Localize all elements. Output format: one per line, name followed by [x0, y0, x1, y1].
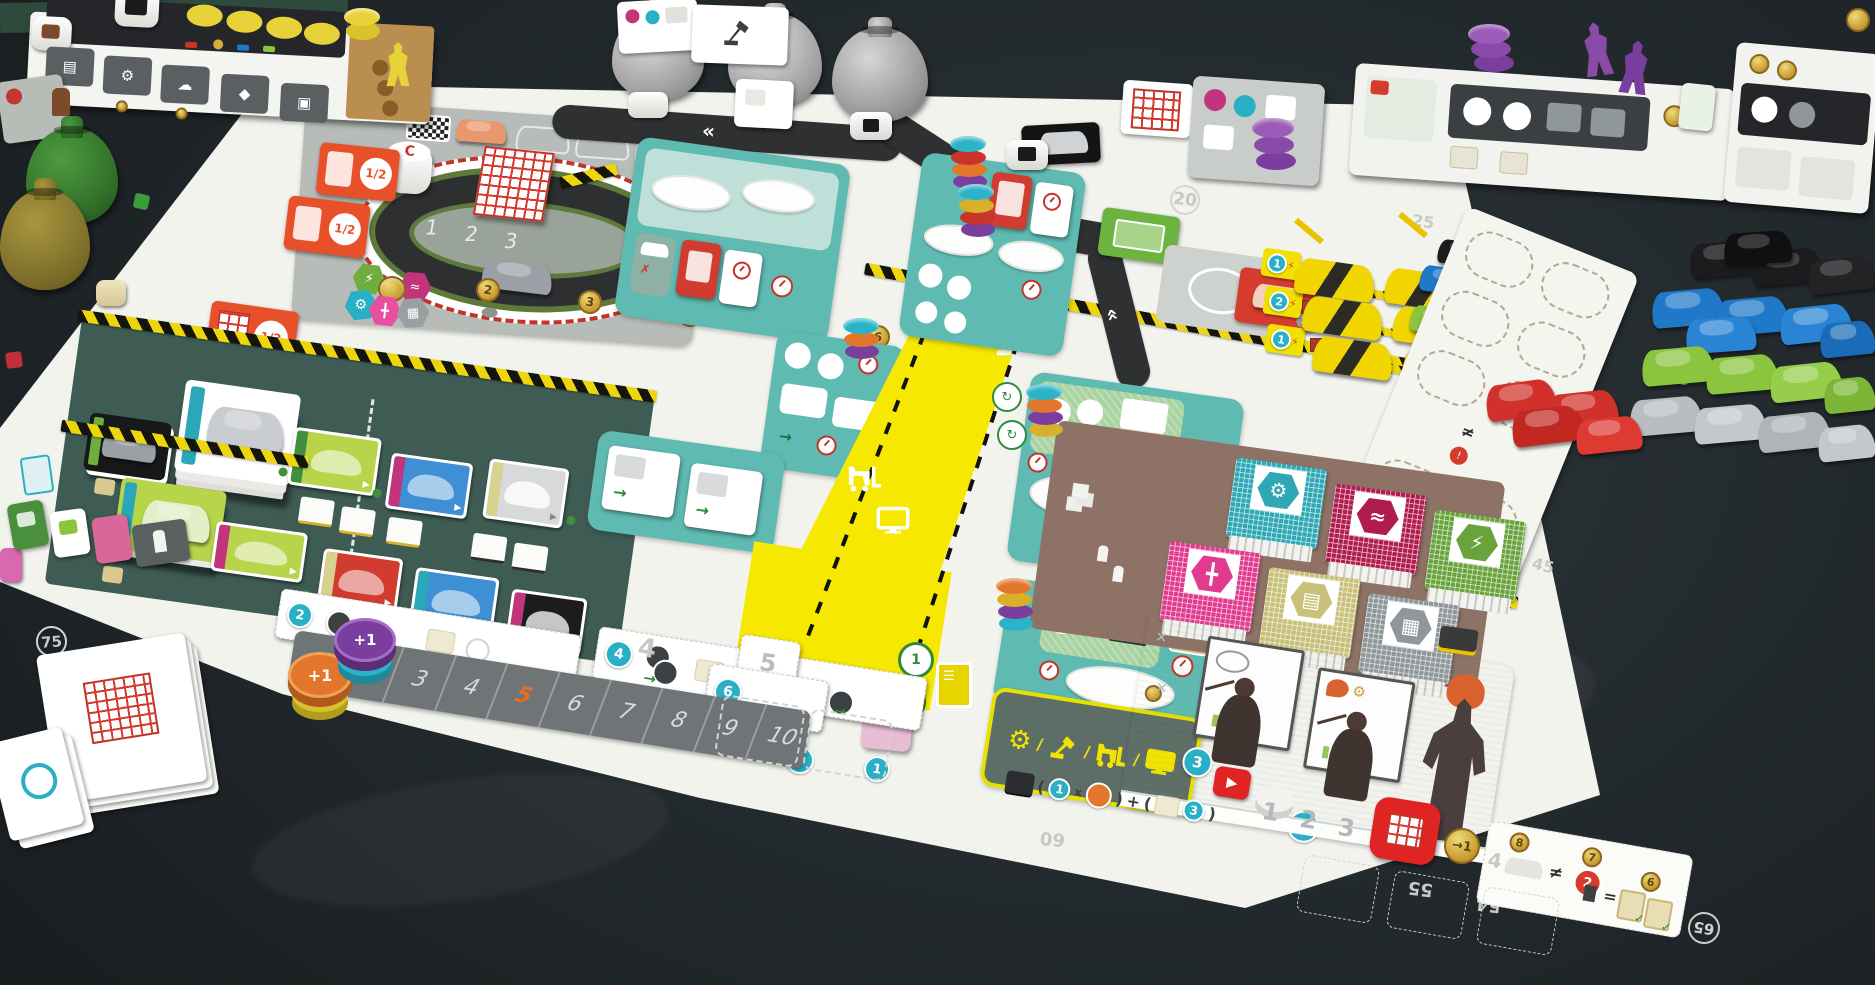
- worker-figure: [1112, 565, 1124, 582]
- disc-orange: [996, 578, 1032, 594]
- dock-cell: [802, 708, 895, 782]
- figure-icon: [152, 529, 167, 552]
- design-card-label: [214, 524, 231, 569]
- disc-purple: [1256, 152, 1296, 170]
- monitor-tile-icon: [1004, 770, 1035, 796]
- gauge-icon: [732, 260, 752, 280]
- token-plus-one: +1: [334, 618, 396, 662]
- card-icon: [58, 519, 78, 535]
- wood-coin-slot: [372, 59, 389, 76]
- tag-slot: [1449, 146, 1478, 170]
- disc-purple: [1254, 136, 1294, 154]
- bag-stand-token[interactable]: [628, 92, 668, 118]
- worker-slot: [914, 300, 939, 325]
- shift-tag-value: 1: [1266, 252, 1289, 275]
- scorepad-grid-icon: [1131, 88, 1182, 131]
- parking-slot: [1510, 314, 1593, 385]
- worker-figure: [1097, 545, 1109, 562]
- car-windshield: [1729, 299, 1765, 318]
- green-die[interactable]: [133, 193, 151, 211]
- meeting-card[interactable]: 1/2: [316, 142, 401, 202]
- gauge-icon: [1026, 451, 1049, 474]
- mini-tile-gray[interactable]: [131, 518, 190, 567]
- band-circle-icon: [1462, 96, 1492, 126]
- mini-car-icon: [640, 241, 670, 258]
- rnd-shelf-battery: ⚡: [1424, 509, 1526, 601]
- tag-slot: [1499, 151, 1528, 175]
- green-arrow-icon: →: [612, 482, 628, 503]
- order-card-red[interactable]: [675, 239, 722, 300]
- disc-purple: [1468, 24, 1510, 44]
- cyan-dot-icon: [645, 10, 660, 25]
- stand-glyph: [863, 119, 879, 132]
- board-slot: [1265, 95, 1297, 121]
- person-chip-icon: [1084, 781, 1114, 811]
- cyan-icon: [1233, 94, 1256, 117]
- tabletop-scene: 10 20 25 35 45 55 54 60 65 70 75 ⚙ 1 2 3…: [0, 0, 1875, 985]
- monitor-icon: [876, 506, 910, 536]
- design-desk: [339, 506, 376, 537]
- car-windshield: [1699, 319, 1734, 336]
- rnd-shelf-engine: ⚙: [1225, 457, 1327, 549]
- card-corner-arrow-icon: ▶: [454, 503, 462, 514]
- parking-slot: [1410, 343, 1493, 414]
- grid-tile-icon: [1154, 795, 1181, 819]
- car-windshield: [1737, 233, 1771, 249]
- paren: (: [1143, 793, 1153, 813]
- score-cell: [1296, 854, 1381, 924]
- design-deck-label: [181, 386, 206, 465]
- disc-yellow: [959, 198, 994, 213]
- formula-badge-3: 3: [1181, 798, 1206, 823]
- electronics-part-icon: ▦: [1386, 605, 1435, 647]
- design-card-car: [406, 472, 456, 501]
- gauge-icon: [1020, 278, 1043, 301]
- shift-tag-value: 1: [1270, 328, 1293, 351]
- robot-arm-icon: [1047, 732, 1081, 762]
- gauge-icon: [815, 434, 838, 457]
- action-slot[interactable]: ☁: [160, 64, 210, 104]
- bolt-icon: ⚡: [1288, 296, 1297, 310]
- disc-cyan: [1026, 384, 1062, 400]
- car-windshield: [1820, 259, 1853, 277]
- design-card[interactable]: ▶: [210, 521, 308, 583]
- assembly-panel-right: [898, 151, 1087, 357]
- end-game-calendar-button[interactable]: [1368, 795, 1443, 867]
- plant: [566, 515, 576, 525]
- meeting-slot-badge-3: 3: [1180, 745, 1214, 779]
- performance-part-icon: ≈: [1353, 496, 1402, 538]
- car-windshield: [1643, 399, 1679, 418]
- pink-cylinder-token[interactable]: [0, 548, 22, 582]
- disc-orange: [844, 332, 879, 347]
- mini-car-red-icon: [185, 42, 197, 49]
- car-windshield: [1828, 427, 1857, 445]
- order-card-white[interactable]: [718, 249, 763, 308]
- tile-icon: [745, 89, 766, 106]
- magenta-icon: [1203, 88, 1226, 111]
- play-button[interactable]: ▶: [1212, 765, 1252, 800]
- band-circle-icon: [1750, 96, 1778, 124]
- cert-clipboard: ✓: [1616, 889, 1647, 923]
- order-card-red[interactable]: [986, 171, 1033, 230]
- worker-slot: [917, 262, 944, 289]
- penalty-icon: !: [1447, 444, 1470, 467]
- red-die[interactable]: [5, 351, 23, 369]
- demand-badge: 2: [285, 600, 315, 630]
- yellow-disc[interactable]: [303, 22, 340, 46]
- design-desk: [298, 496, 335, 527]
- rnd-shelf-performance: ≈: [1325, 483, 1427, 575]
- worker-slot: [943, 310, 968, 335]
- action-slot[interactable]: ◆: [220, 74, 270, 114]
- order-card-white[interactable]: [1029, 181, 1074, 238]
- dock-cell: [714, 694, 807, 768]
- meeting-card-ratio: 1/2: [358, 156, 393, 191]
- car-windshield: [1783, 365, 1819, 384]
- card-icon: [696, 472, 729, 498]
- car-windshield: [1771, 415, 1807, 434]
- bonus-tile[interactable]: [734, 79, 794, 130]
- cert-car-outline: [1504, 856, 1544, 879]
- opponent-player-board[interactable]: [1723, 42, 1875, 214]
- car-windshield: [1793, 307, 1829, 326]
- supply-car-green[interactable]: [1705, 353, 1780, 395]
- supply-car-red[interactable]: [1574, 415, 1643, 456]
- bag-stand-token[interactable]: [850, 112, 892, 140]
- action-slot[interactable]: ⚙: [102, 55, 152, 95]
- supply-car-black[interactable]: [1723, 230, 1793, 267]
- supply-car-green[interactable]: [1822, 375, 1875, 414]
- neq-symbol: ≠: [1458, 421, 1478, 444]
- car-windshield: [1588, 419, 1621, 437]
- action-slot[interactable]: ▣: [279, 83, 329, 123]
- board-dark-band: [1447, 84, 1650, 152]
- yellow-disc[interactable]: [226, 10, 263, 34]
- disc-purple: [1252, 118, 1294, 138]
- gauge-icon: [1042, 192, 1062, 212]
- gauge-icon: [1038, 659, 1061, 682]
- parking-slot: [1458, 224, 1541, 295]
- shift-tag-3: 1⚡: [1264, 323, 1306, 356]
- cash-icon: [1112, 219, 1165, 254]
- supply-car-green[interactable]: [1641, 345, 1716, 387]
- car-windshield: [1498, 383, 1533, 403]
- card-corner-arrow-icon: ▶: [289, 566, 297, 577]
- disc-orange: [1027, 398, 1062, 413]
- car-windshield: [1833, 379, 1859, 396]
- card-icon: [614, 454, 647, 480]
- car-windshield: [1830, 323, 1858, 341]
- assembly-table: [649, 170, 733, 215]
- table-light-streak: [244, 751, 677, 928]
- score-space-65: 65: [1685, 909, 1722, 946]
- kanban-tag[interactable]: [102, 565, 124, 584]
- times-sign: x: [1073, 785, 1083, 800]
- design-card[interactable]: ▶: [482, 458, 570, 529]
- lap-space-2: 2: [465, 222, 478, 246]
- board-slot: [1735, 146, 1792, 191]
- bulb-gear-icon: ⚙: [1006, 724, 1034, 757]
- wood-coin-slot: [382, 100, 399, 117]
- yellow-disc[interactable]: [266, 16, 303, 40]
- cyan-ring-icon: [17, 759, 61, 803]
- purple-meeple[interactable]: [1574, 20, 1619, 81]
- pit-circle-1: 1: [898, 642, 934, 678]
- mini-card-white[interactable]: [49, 508, 91, 559]
- forklift-slot: [846, 462, 884, 496]
- car-windshield: [1655, 349, 1691, 368]
- red-icon: [5, 87, 23, 105]
- gear-check-icon: ⚙: [1351, 682, 1367, 702]
- meeting-card-icon: [325, 151, 354, 188]
- pallet-boxes: [1071, 483, 1089, 499]
- station-slot: [779, 383, 829, 419]
- paren: ): [1114, 789, 1124, 809]
- parking-slot: [1434, 284, 1517, 355]
- meeting-card-ratio: 1/2: [327, 211, 363, 247]
- worker-slot: [783, 341, 812, 370]
- interior-part-icon: ▤: [1287, 579, 1336, 621]
- board-slot: [1798, 156, 1855, 201]
- supply-car-blue[interactable]: [1818, 319, 1875, 359]
- clipboard-icon: ☰: [936, 662, 972, 708]
- disc-cyan: [950, 136, 986, 152]
- design-card-label: [485, 462, 503, 517]
- worker-slot: [816, 352, 845, 381]
- improvement-card[interactable]: →: [601, 445, 681, 518]
- mini-card-pink[interactable]: [91, 514, 133, 565]
- road-chevrons: «: [701, 118, 714, 143]
- supply-car-gray[interactable]: [1693, 403, 1768, 445]
- scorepad-tile[interactable]: [1120, 80, 1194, 139]
- paren: (: [1036, 776, 1046, 796]
- mini-coin-icon: [213, 39, 224, 50]
- disc-yellow: [344, 8, 380, 26]
- design-desk: [470, 533, 507, 564]
- engine-part-icon: ⚙: [1254, 470, 1303, 512]
- cert-pawn: [1582, 885, 1597, 903]
- card-corner-arrow-icon: ▶: [362, 480, 370, 491]
- yellow-disc[interactable]: [186, 4, 223, 28]
- wall-mark: ✕: [1154, 680, 1168, 698]
- cross-icon: ✗: [639, 261, 651, 276]
- reference-card[interactable]: [691, 4, 789, 65]
- coin-icon: [175, 107, 188, 120]
- speech-bubble-outline: [1214, 648, 1251, 675]
- brown-meeple[interactable]: [52, 88, 70, 116]
- monitor-slot: [876, 506, 910, 540]
- assembly-mini-room: ✗: [629, 233, 677, 298]
- meeting-card[interactable]: 1/2: [283, 195, 371, 259]
- clipboard-lines: ☰: [943, 669, 955, 684]
- improvement-card[interactable]: →: [683, 463, 763, 536]
- design-card[interactable]: ▶: [385, 452, 474, 519]
- band-slot: [1546, 102, 1582, 132]
- speed-circle-icon: ↻: [992, 382, 1022, 412]
- forklift-mini: [1438, 625, 1479, 656]
- bag-stand-token[interactable]: [114, 0, 160, 28]
- red-icon: [1370, 80, 1389, 95]
- disc-cyan: [843, 318, 879, 334]
- plus-sign: +: [1125, 791, 1141, 812]
- cert-eq: =: [1602, 886, 1619, 907]
- board-dark-band: [1737, 83, 1871, 146]
- stand-glyph: [41, 24, 60, 39]
- stand-glyph: [1018, 147, 1036, 161]
- parking-slot: [1534, 255, 1617, 326]
- band-circle-icon: [1502, 101, 1532, 131]
- formula-badge-1: 1: [1047, 777, 1072, 802]
- gauge-icon: [770, 274, 795, 299]
- worker-slot: [946, 274, 973, 301]
- cert-neq: ≠: [1547, 862, 1565, 884]
- magenta-dot-icon: [625, 9, 640, 24]
- assembly-panel-top: ✗: [614, 136, 852, 344]
- car-windshield: [1524, 409, 1559, 429]
- board-slot: [1203, 124, 1235, 150]
- mini-car-blue-icon: [237, 44, 249, 51]
- cert-coin-6: 6: [1639, 870, 1662, 893]
- money-bag-olive[interactable]: [0, 190, 90, 290]
- bolt-icon: ⚡: [1286, 258, 1295, 272]
- kanban-tag[interactable]: [94, 477, 116, 496]
- calendar-icon: [1385, 812, 1426, 849]
- order-card-face: [685, 250, 713, 283]
- assembly-table: [740, 175, 818, 217]
- design-card-car: [234, 539, 290, 566]
- plant: [372, 488, 382, 498]
- lap-space-1: 1: [426, 215, 439, 239]
- demand-badge: 4: [603, 638, 635, 670]
- cream-cylinder-token[interactable]: [96, 280, 126, 306]
- order-card-face: [995, 180, 1025, 217]
- coin-token[interactable]: [1846, 8, 1870, 32]
- coin-icon: [1776, 60, 1798, 82]
- design-card-car: [504, 479, 553, 510]
- cert-faint-4: 4: [1486, 847, 1504, 873]
- car-windshield: [1707, 407, 1743, 426]
- stand-glyph: [125, 0, 148, 16]
- band-circle-icon: [1788, 101, 1816, 129]
- robot-arm-icon: [720, 17, 755, 48]
- mini-tile-cyan[interactable]: [20, 454, 55, 496]
- mini-car-green-icon: [263, 46, 275, 53]
- car-windshield: [466, 121, 491, 132]
- card-icon: [16, 511, 36, 528]
- meeting-card-icon: [292, 205, 322, 242]
- idea-blob-icon: [1325, 678, 1350, 699]
- band-slot: [1590, 107, 1626, 137]
- green-arrow-icon: →: [778, 427, 793, 447]
- design-card-car: [310, 447, 364, 478]
- design-card-car: [338, 567, 387, 596]
- car-windshield: [496, 261, 531, 278]
- lap-space-3: 3: [505, 229, 518, 253]
- grid-card-icon: [83, 672, 160, 744]
- check-icon: ✓: [1660, 919, 1672, 935]
- design-card-black-stack[interactable]: [83, 412, 172, 481]
- car-windshield: [1719, 357, 1755, 376]
- car-windshield: [1665, 291, 1701, 310]
- battery-part-icon: ⚡: [1453, 522, 1502, 564]
- design-desk: [511, 542, 548, 573]
- road-chevrons: «: [1100, 305, 1126, 321]
- mini-card-green[interactable]: [6, 499, 49, 551]
- car-windshield: [223, 409, 262, 431]
- disc-cyan: [958, 184, 994, 200]
- speed-circle-icon: ↻: [997, 420, 1027, 450]
- disc-yellow: [997, 592, 1032, 607]
- assembly-table: [996, 237, 1066, 276]
- score-space-60: 60: [1039, 827, 1066, 850]
- supply-car-black[interactable]: [1806, 255, 1875, 296]
- money-bag-gray[interactable]: [832, 28, 928, 122]
- disc-red: [951, 150, 986, 165]
- cert-coin-7: 7: [1580, 846, 1603, 869]
- chassis-part-icon: ╋: [1188, 553, 1237, 595]
- design-card-label: [388, 456, 406, 507]
- score-cell: [1386, 870, 1471, 940]
- card-corner-arrow-icon: ▶: [549, 512, 557, 523]
- supply-car-red[interactable]: [1510, 404, 1584, 448]
- design-desk: [386, 517, 423, 548]
- shift-tag-value: 2: [1268, 290, 1291, 313]
- card-icon: [665, 6, 688, 23]
- green-arrow-icon: →: [694, 500, 710, 521]
- mini-card[interactable]: [1678, 82, 1717, 131]
- calendar-standee[interactable]: [473, 146, 555, 222]
- reference-card[interactable]: [617, 0, 700, 54]
- cert-clipboard: ✓: [1643, 898, 1674, 932]
- bolt-icon: ⚡: [1290, 334, 1299, 348]
- speed-die-token[interactable]: [1006, 140, 1048, 170]
- forklift-icon: [846, 462, 884, 492]
- cert-coin-8: 8: [1508, 831, 1531, 854]
- wall-mark: ✕: [1154, 629, 1168, 647]
- coin-icon: [116, 100, 129, 113]
- supply-car-gray[interactable]: [1816, 423, 1875, 463]
- score-cell: [1476, 886, 1561, 956]
- parts-tray: [1119, 398, 1169, 434]
- coin-icon: [1749, 53, 1771, 75]
- podium-car-slot-orange: [456, 119, 507, 144]
